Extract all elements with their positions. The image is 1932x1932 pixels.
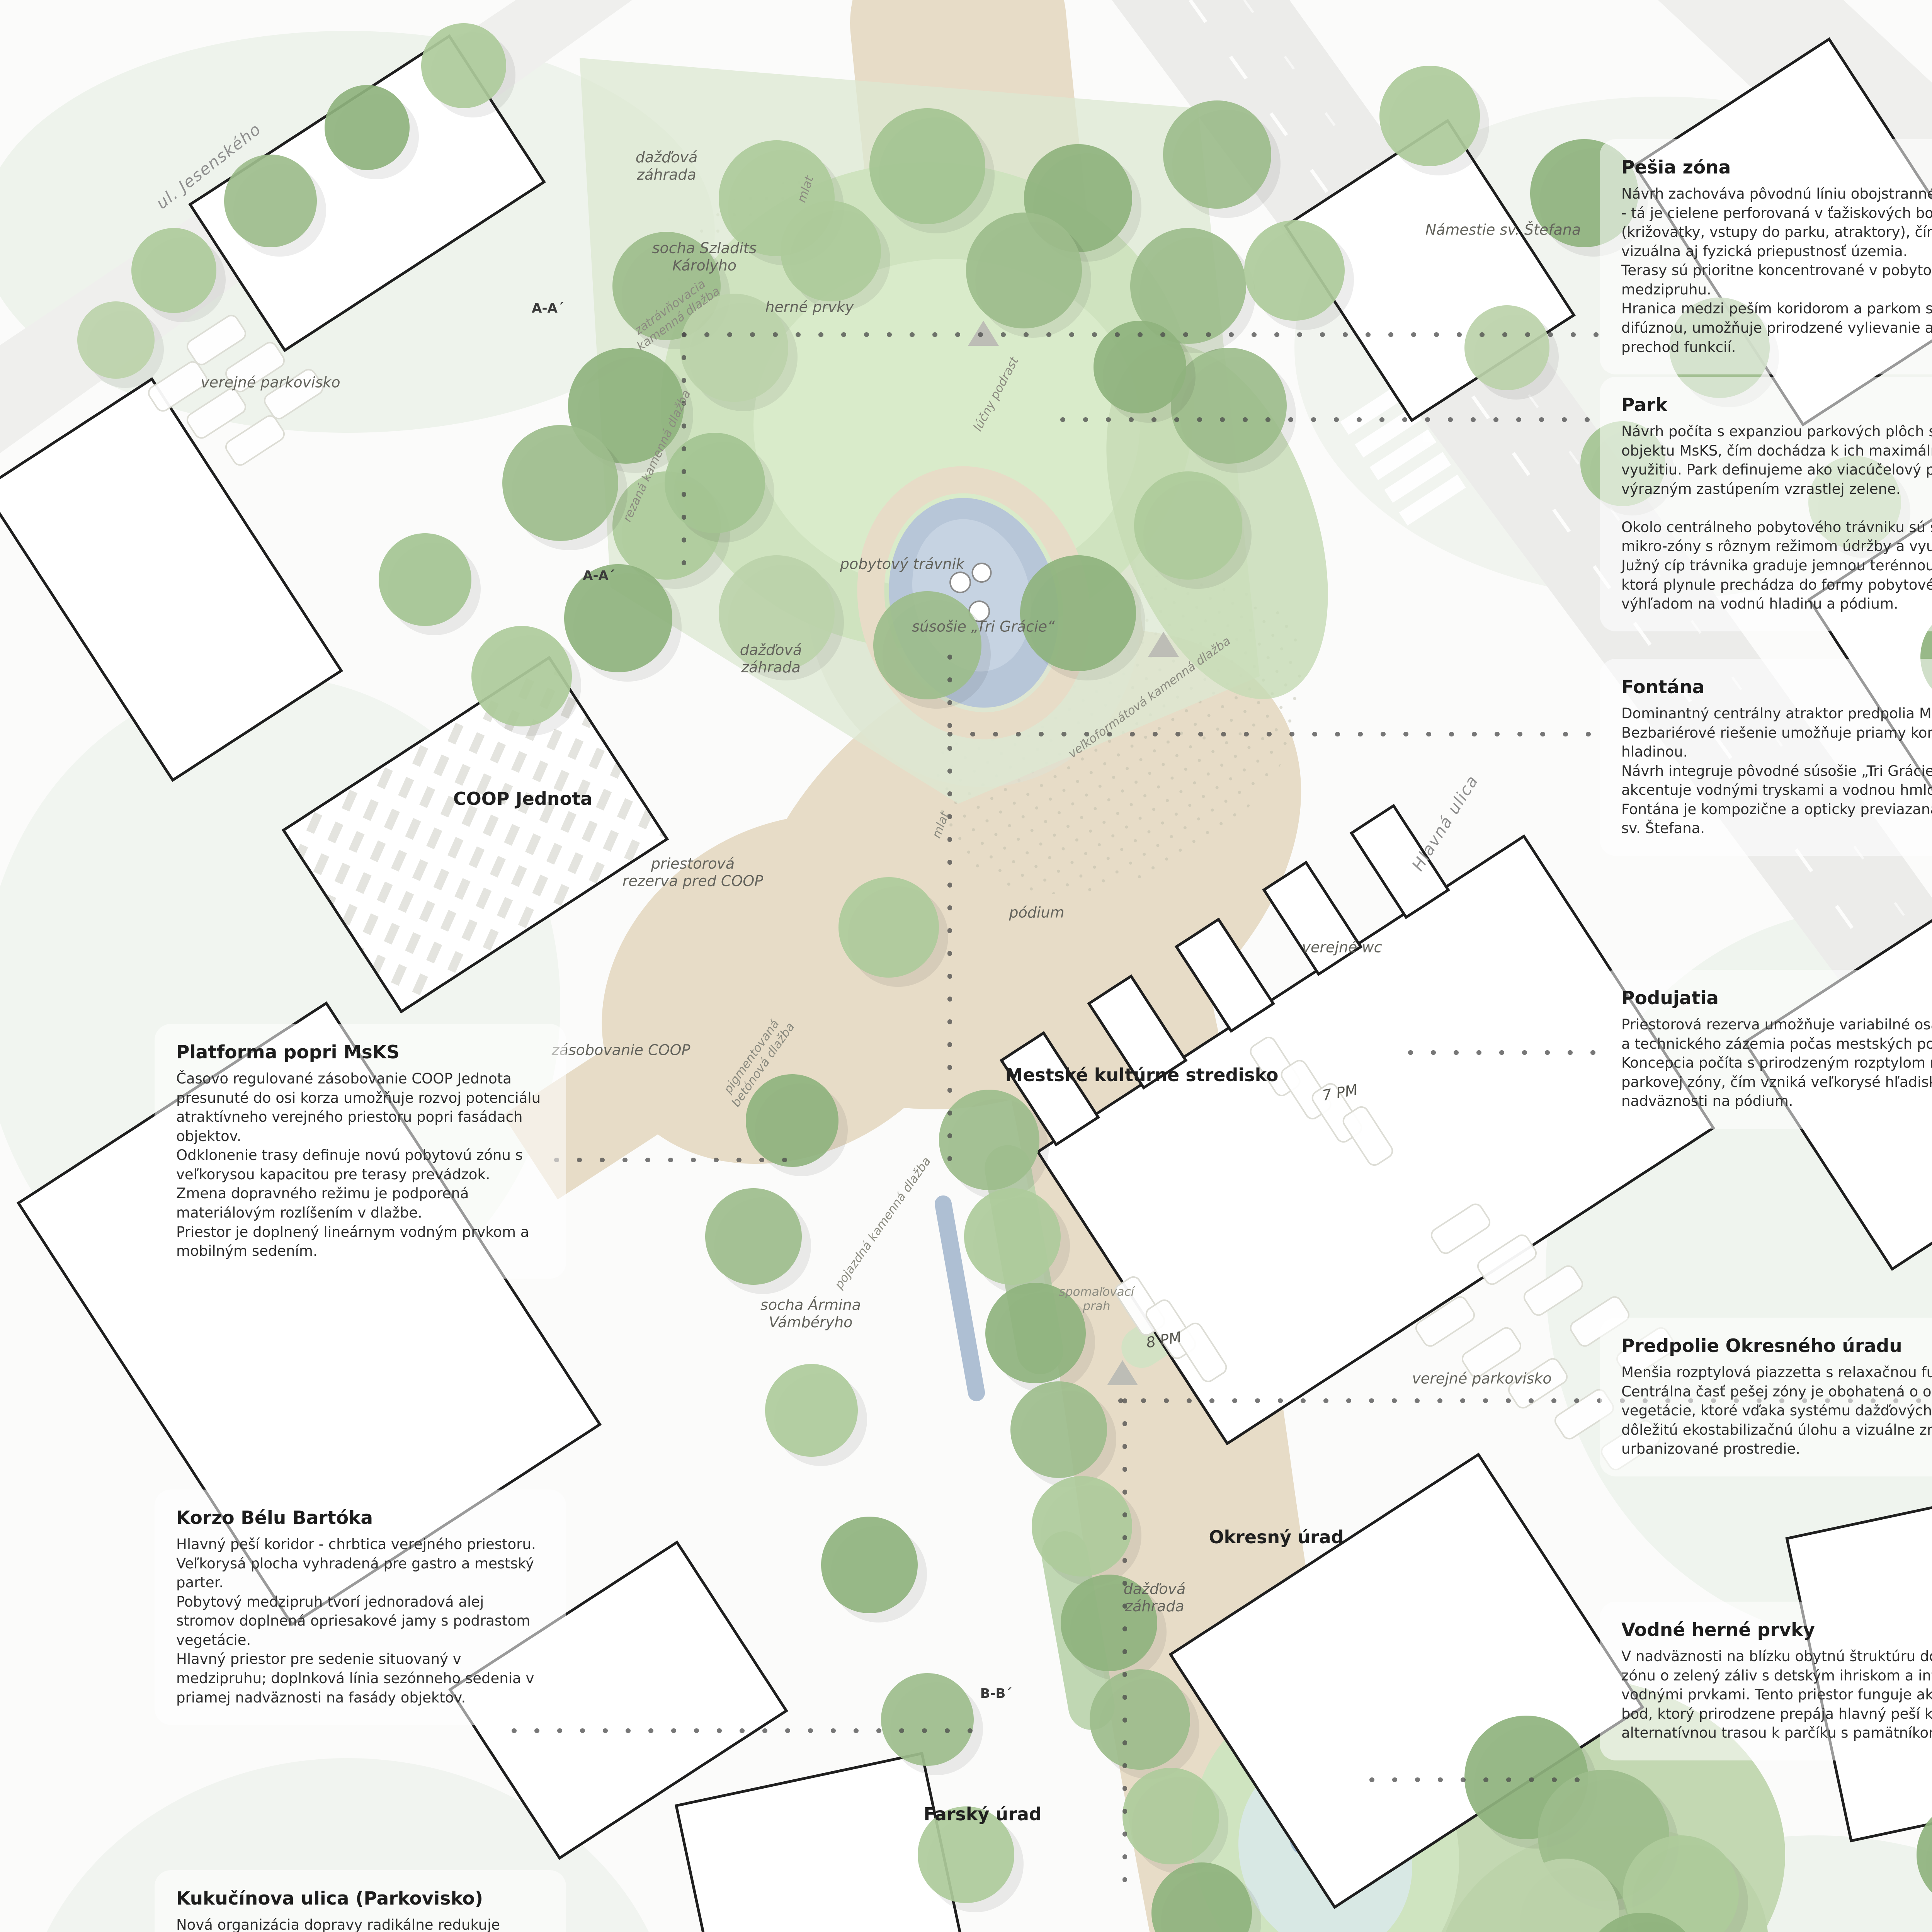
map-label-10: Námestie sv. Štefana — [1425, 221, 1581, 239]
map-label-18: Mestské kultúrne stredisko — [1005, 1065, 1278, 1085]
panel-title: Predpolie Okresného úradu — [1621, 1335, 1932, 1357]
panel-podujatia: Podujatia Priestorová rezerva umožňuje v… — [1600, 970, 1932, 1129]
map-label-16: pódium — [1009, 904, 1064, 922]
panel-title: Vodné herné prvky — [1621, 1619, 1932, 1641]
panel-title: Park — [1621, 395, 1932, 416]
panel-title: Pešia zóna — [1621, 157, 1932, 178]
map-label-26: 8 PM — [1145, 1328, 1183, 1352]
map-label-9: pobytový trávnik — [840, 556, 964, 573]
panel-predpolie-okresneho-uradu: Predpolie Okresného úradu Menšia rozptyl… — [1600, 1318, 1932, 1476]
panel-vodne-herne-prvky: Vodné herné prvky V nadväznosti na blízk… — [1600, 1602, 1932, 1760]
panel-body: V nadväznosti na blízku obytnú štruktúru… — [1621, 1647, 1932, 1743]
map-label-56: A-A´ — [532, 301, 564, 316]
map-label-24: pojazdná kamenná dlažba — [832, 1155, 934, 1292]
map-label-17: verejné wc — [1302, 939, 1382, 956]
poster: ul. Jesenskéhoverejné parkoviskodažďová … — [0, 0, 1932, 1932]
map-label-14: Hlavná ulica — [1408, 772, 1482, 874]
panel-body: Návrh počíta s expanziou parkových plôch… — [1621, 422, 1932, 614]
map-label-19: COOP Jednota — [453, 788, 592, 809]
map-label-22: pigmentovaná betónová dlažba — [717, 1012, 798, 1109]
panel-title: Kukučínova ulica (Parkovisko) — [176, 1888, 544, 1909]
panel-title: Podujatia — [1621, 988, 1932, 1009]
map-label-31: Farský úrad — [923, 1804, 1042, 1825]
map-label-57: A-A´ — [583, 568, 615, 583]
panel-fontana: Fontána Dominantný centrálny atraktor pr… — [1600, 659, 1932, 856]
map-label-7: rezaná kamenná dlažba — [620, 388, 694, 524]
panel-body: Časovo regulované zásobovanie COOP Jedno… — [176, 1069, 544, 1261]
panel-body: Dominantný centrálny atraktor predpolia … — [1621, 704, 1932, 838]
panel-title: Korzo Bélu Bartóka — [176, 1507, 544, 1529]
map-label-30: dažďová záhrada — [1124, 1580, 1186, 1615]
map-label-15: mlat — [930, 810, 952, 840]
map-label-0: ul. Jesenského — [153, 119, 265, 213]
panel-park: Park Návrh počíta s expanziou parkových … — [1600, 377, 1932, 631]
panel-body: Priestorová rezerva umožňuje variabilné … — [1621, 1015, 1932, 1111]
panel-title: Platforma popri MsKS — [176, 1042, 544, 1063]
map-label-28: verejné parkovisko — [1412, 1370, 1551, 1388]
map-label-11: súsošie „Tri Grácie“ — [912, 618, 1055, 636]
map-label-1: verejné parkovisko — [201, 374, 340, 391]
panel-body: Menšia rozptylová piazzetta s relaxačnou… — [1621, 1363, 1932, 1459]
map-label-6: zatrávňovacia kamenná dlažba — [626, 272, 723, 354]
panel-body: Nová organizácia dopravy radikálne reduk… — [176, 1915, 544, 1932]
panel-title: Fontána — [1621, 677, 1932, 698]
panel-korzo-belu-bartoka: Korzo Bélu Bartóka Hlavný peší koridor -… — [155, 1490, 566, 1725]
map-label-20: priestorová rezerva pred COOP — [622, 855, 763, 890]
map-label-8: lúčny podrast — [971, 355, 1022, 434]
map-label-58: B-B´ — [980, 1686, 1012, 1701]
panel-kukucinova-ulica: Kukučínova ulica (Parkovisko) Nová organ… — [155, 1870, 566, 1932]
map-label-4: herné prvky — [765, 299, 854, 316]
map-label-12: dažďová záhrada — [740, 641, 802, 676]
map-label-25: 7 PM — [1321, 1081, 1359, 1104]
map-label-5: mlat — [795, 174, 816, 204]
map-label-27: spomaľovací prah — [1059, 1285, 1134, 1313]
map-label-3: socha Szladits Károlyho — [652, 240, 757, 274]
panel-pesia-zona: Pešia zóna Návrh zachováva pôvodnú líniu… — [1600, 139, 1932, 374]
map-label-21: zásobovanie COOP — [552, 1042, 690, 1059]
panel-platforma-popri-msks: Platforma popri MsKS Časovo regulované z… — [155, 1024, 566, 1279]
panel-body: Návrh zachováva pôvodnú líniu obojstrann… — [1621, 184, 1932, 357]
map-label-2: dažďová záhrada — [636, 149, 698, 184]
map-label-13: veľkoformátová kamenná dlažba — [1066, 634, 1233, 761]
map-label-23: socha Ármina Vámbéryho — [760, 1296, 861, 1331]
panel-body: Hlavný peší koridor - chrbtica verejného… — [176, 1535, 544, 1707]
map-label-29: Okresný úrad — [1209, 1527, 1344, 1548]
